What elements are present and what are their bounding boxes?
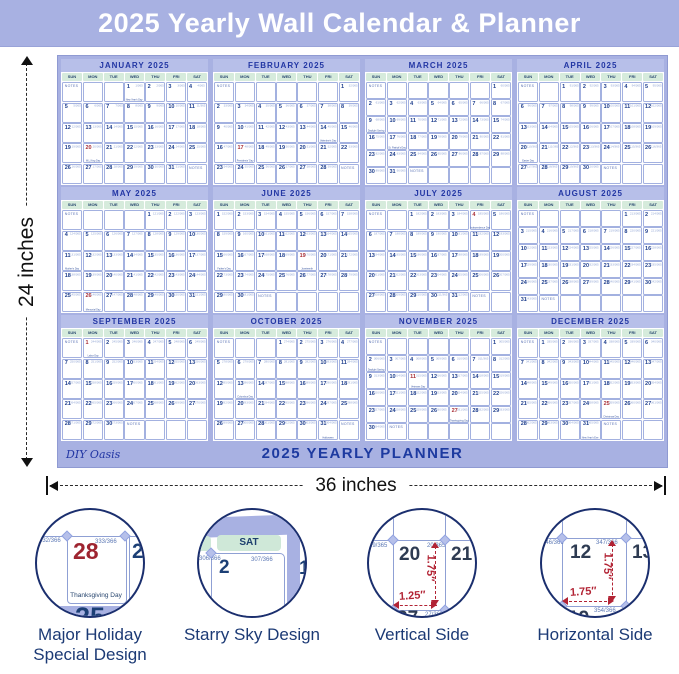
month-grid: NOTES1182/3652183/3653184/3654185/365Ind… [365,209,512,313]
calendar-cell: 19200/365 [491,251,511,271]
measure-arrow-up-icon [431,542,439,548]
calendar-cell: 26207/365 [491,271,511,291]
calendar-cell: 26116/365 [643,143,663,163]
calendar-cell [470,82,490,99]
day-of-year-count: 234/365 [630,263,641,266]
calendar-cell [643,420,663,440]
day-of-year-count: 351/365 [588,381,599,384]
calendar-cell: 28271/365 [62,420,82,440]
date-number: 13 [300,125,306,131]
calendar-cell: 9221/365 [643,227,663,244]
date-number: 30 [148,165,154,171]
notes-label: NOTES [65,340,79,344]
calendar-cell: 23296/365 [297,399,317,419]
day-of-year-count: 263/365 [194,381,205,384]
day-of-year-count: 265/365 [91,401,102,404]
weekday-header: TUE [408,73,428,81]
calendar-cell: 1748/365Presidents' Day [235,143,255,163]
calendar-cell: 18199/365 [470,251,490,271]
notes-label: NOTES [521,84,535,88]
calendar-cell: 25359/365Christmas Day [601,399,621,419]
calendar-cell: 2727/365 [83,164,103,184]
star-diamond-icon [620,532,631,543]
calendar-cell [428,338,448,355]
date-number: 12 [279,125,285,131]
day-of-year-count: 56/365 [265,165,274,168]
calendar-cell: 55/365 [62,103,82,123]
weekday-header: THU [449,329,469,337]
calendar-cell: 867/365 [491,99,511,116]
holiday-name-label: Juneteenth [297,267,318,270]
day-of-year-count: 25/365 [196,145,205,148]
calendar-cell: 23266/365 [104,399,124,419]
day-of-year-count: 93/365 [611,84,620,87]
day-of-year-count: 325/365 [478,391,489,394]
calendar-cell: 25206/365 [470,271,490,291]
day-of-year-count: 177/365 [305,273,316,276]
day-of-year-count: 21/365 [113,145,122,148]
calendar-cell: 11162/365 [276,231,296,251]
day-of-year-count: 256/365 [194,360,205,363]
calendar-cell: 968/365Daylight Saving [366,116,386,133]
month-grid: NOTES191/365292/365393/365494/365595/365… [517,81,664,185]
date-number: 2 [106,340,109,346]
day-of-year-count: 273/365 [112,421,123,424]
day-of-year-count: 82/365 [376,152,385,155]
calendar-cell: 1213/365 [622,210,642,227]
date-number: 3 [127,340,130,346]
date-number: 3 [258,212,261,218]
date-number: 7 [604,229,607,235]
date-number: 27 [300,165,306,171]
calendar-cell: 2887/365 [470,150,490,167]
calendar-cell: 5125/365 [83,231,103,251]
calendar-cell: 30273/365 [104,420,124,440]
calendar-cell: 494/365 [622,82,642,102]
day-of-year-count: 192/365 [478,232,489,235]
calendar-cell: 22265/365 [83,399,103,419]
date-number: 20 [85,145,91,151]
calendar-cell: 19262/365 [166,379,186,399]
calendar-cell: 18352/365 [601,379,621,399]
date-number: 1 [279,340,282,346]
calendar-cell: NOTES [366,210,386,230]
calendar-cell: 19323/365 [428,389,448,406]
day-of-year-count: 28/365 [113,165,122,168]
month-january-2025: JANUARY 2025SUNMONTUEWEDTHUFRISATNOTES11… [61,59,208,185]
calendar-cell: 27300/365 [235,420,255,440]
day-of-year-count: 163/365 [305,232,316,235]
weekday-header-row: SUNMONTUEWEDTHUFRISAT [365,200,512,209]
day-of-year-count: 127/365 [132,232,143,235]
day-of-year-count: 225/365 [588,246,599,249]
day-of-year-count: 27/365 [93,165,102,168]
partial-date: 1 [299,558,307,580]
date-number: 7 [541,104,544,110]
day-of-year-count: 99/365 [590,104,599,107]
weekday-header: SAT [643,73,663,81]
date-number: 3 [452,212,455,218]
calendar-cell: 23174/365 [235,271,255,291]
day-of-year-count: 162/365 [284,232,295,235]
calendar-cell: 13256/365 [187,359,207,379]
date-number: 9 [106,360,109,366]
day-of-year-count: 120/365 [588,165,599,168]
cell-height-label: 1.75″ [424,554,437,581]
calendar-cell: 25298/365 [339,399,359,419]
calendar-cell: 7219/365 [601,227,621,244]
day-of-year-count: 159/365 [222,232,233,235]
date-number: 4 [279,212,282,218]
calendar-cell: 4247/365 [145,338,165,358]
date-number: 5 [431,357,434,363]
calendar-cell: 20140/365 [104,271,124,291]
calendar-cell: 10344/365 [580,359,600,379]
calendar-cell: 13133/365 [104,251,124,271]
day-of-year-count: 319/365 [498,374,509,377]
calendar-cell: 13347/365 [643,359,663,379]
calendar-cell: 3190/365 [387,167,407,184]
day-of-year-count: 173/365 [222,273,233,276]
calendar-cell: 11131/365Mother's Day [62,251,82,271]
calendar-cell: 11284/365 [339,359,359,379]
day-of-year-count: 274/365 [284,340,295,343]
day-of-year-count: 60/365 [500,84,509,87]
weekday-header-row: SUNMONTUEWEDTHUFRISAT [61,328,208,337]
calendar-cell: 3131/365 [166,164,186,184]
day-of-year-count: 155/365 [284,212,295,215]
weekday-header: TUE [560,201,580,209]
day-of-year-count: 58/365 [307,165,316,168]
day-of-year-count: 248/365 [174,340,185,343]
day-of-year-count: 187/365 [374,232,385,235]
day-of-year-count: 329/365 [416,408,427,411]
day-of-year-count: 358/365 [588,401,599,404]
date-number: 15 [127,125,133,131]
cell-width-label: 1.25″ [399,589,426,603]
calendar-cell: 2584/365 [408,150,428,167]
day-of-year-count: 175/365 [264,273,275,276]
calendar-cell: 13164/365 [318,231,338,251]
calendar-cell: 2525/365 [187,143,207,163]
calendar-cell: 6218/365 [580,227,600,244]
day-of-year-count: 322/365 [416,391,427,394]
date-number: 5 [300,212,303,218]
calendar-cell: NOTES [518,210,538,227]
date-number: 3 [604,84,607,90]
day-of-year-count: 303/365 [305,421,316,424]
calendar-cell: 27270/365 [187,399,207,419]
day-of-year-count: 306/365 [374,357,385,360]
day-of-year-count: 7/365 [115,104,122,107]
day-of-year-count: 74/365 [500,118,509,121]
calendar-cell: 23235/365 [643,261,663,278]
day-of-year-count: 6/365 [94,104,101,107]
day-of-year-count: 29/365 [134,165,143,168]
calendar-cell: 21172/365 [339,251,359,271]
date-number: 16 [217,145,223,151]
date-number: 4 [258,104,261,110]
calendar-cell: 6187/365 [366,231,386,251]
month-may-2025: MAY 2025SUNMONTUEWEDTHUFRISATNOTES1121/3… [61,187,208,313]
day-of-year-count: 362/365 [526,421,537,424]
calendar-cell: 5156/365 [297,210,317,230]
weekday-header: SAT [339,201,359,209]
day-of-year-count: 92/365 [590,84,599,87]
weekday-header: THU [145,73,165,81]
calendar-cell: 2051/365 [297,143,317,163]
day-of-year-count: 166/365 [222,253,233,256]
date-number: 10 [237,125,243,131]
day-of-year-count: 258/365 [91,381,102,384]
date-number: 11 [258,125,264,131]
day-of-year-count: 244/365 [91,340,102,343]
calendar-cell [83,82,103,102]
weekday-header: WED [277,201,297,209]
calendar-cell: 29119/365 [560,164,580,184]
day-of-year-count: 227/365 [630,246,641,249]
day-header-pill: SAT [217,535,281,551]
day-of-year-count: 26/365 [72,165,81,168]
date-number: 2 [237,212,240,218]
notes-label: NOTES [341,166,355,170]
day-of-year-count: 118/365 [547,165,558,168]
calendar-cell [580,295,600,312]
calendar-cell: 15196/365 [408,251,428,271]
holiday-name-label: Thanksgiving Day [67,592,125,599]
day-of-year-count: 97/365 [549,104,558,107]
calendar-cell: 18138/365 [62,271,82,291]
calendar-cell: 15105/365 [560,123,580,143]
calendar-cell: 4216/365 [539,227,559,244]
calendar-cell: 14226/365 [601,244,621,261]
calendar-cell: 23113/365 [580,143,600,163]
calendar-cell: 17260/365 [124,379,144,399]
day-of-year-count: 307/365 [395,357,406,360]
calendar-cell: 30303/365 [297,420,317,440]
weekday-header: TUE [256,329,276,337]
date-number: 4 [189,84,192,90]
day-of-year-count: 73/365 [479,118,488,121]
calendar-cell: 696/365 [518,103,538,123]
notes-label: NOTES [65,84,79,88]
calendar-cell [428,82,448,99]
calendar-cell: 31304/365Halloween [318,420,338,440]
day-of-year-count: 182/365 [416,212,427,215]
calendar-cell: 29210/365 [408,292,428,312]
weekday-header-row: SUNMONTUEWEDTHUFRISAT [213,328,360,337]
day-of-year-count: 85/365 [438,152,447,155]
day-of-year-count: 113/365 [589,145,600,148]
calendar-cell: 2020/365M.L.King Day [83,143,103,163]
weekday-header: SUN [518,73,538,81]
day-of-year-count: 141/365 [132,273,143,276]
weekday-header: SUN [62,329,82,337]
calendar-cell: 26299/365 [214,420,234,440]
date-number: 31 [389,169,395,175]
day-of-year-count: 89/365 [376,169,385,172]
day-of-year-count: 241/365 [630,280,641,283]
day-of-year-count: 209/365 [395,293,406,296]
calendar-cell: 637/365 [297,103,317,123]
calendar-cell: 22234/365 [622,261,642,278]
feature-circle-major-holiday: 332/366 333/366 28 29 Thanksgiving Day 2… [35,508,145,618]
day-of-year-count: 170/365 [305,253,316,256]
day-of-year-count: 332/365 [478,408,489,411]
holiday-name-label: M.L.King Day [83,160,104,163]
day-of-year-count: 365/365 [588,421,599,424]
day-of-year-count: 188/365 [395,232,406,235]
calendar-cell: 33/365 [166,82,186,102]
calendar-cell: 7341/365 [518,359,538,379]
month-title-label: FEBRUARY 2025 [213,59,360,72]
day-of-year-count: 213/365 [630,212,641,215]
day-of-year-count: 268/365 [153,401,164,404]
day-of-year-count: 52/365 [327,145,336,148]
calendar-cell: 6340/365 [643,338,663,358]
day-of-year-count: 294/365 [264,401,275,404]
calendar-cell: 4338/365 [601,338,621,358]
date-number: 13 [85,125,91,131]
date-number: 8 [562,104,565,110]
date-number: 4 [541,229,544,235]
weekday-header: FRI [166,201,186,209]
calendar-cell: 88/365 [124,103,144,123]
day-of-year-count: 281/365 [284,360,295,363]
calendar-cell: 940/365 [214,123,234,143]
calendar-cell: 435/365 [256,103,276,123]
calendar-cell: 1170/365 [408,116,428,133]
calendar-cell: 8342/365 [539,359,559,379]
calendar-cell: 21264/365 [62,399,82,419]
date-number: 2 [168,212,171,218]
notes-label: NOTES [472,294,486,298]
calendar-cell: 25237/365 [539,278,559,295]
calendar-cell: 3123/365 [187,210,207,230]
calendar-cell [580,210,600,227]
date-number: 27 [85,165,91,171]
calendar-cell [491,167,511,184]
day-of-year-count: 61/365 [376,101,385,104]
day-of-year-count: 323/365 [436,391,447,394]
calendar-cell: 17229/365 [518,261,538,278]
calendar-cell: 8189/365 [408,231,428,251]
calendar-cell: 1344/365 [297,123,317,143]
star-diamond-icon [387,534,398,545]
day-of-year-count: 167/365 [243,253,254,256]
sample-date: 12 [570,542,591,564]
calendar-cell [601,210,621,227]
grid-line [369,540,475,541]
date-number: 6 [645,340,648,346]
weekday-header: TUE [560,73,580,81]
day-of-year-count: 4/365 [198,84,205,87]
day-of-year-count: 27/365 [425,612,443,618]
calendar-cell: 14195/365 [387,251,407,271]
calendar-cell: 1010/365 [166,103,186,123]
weekday-header: SUN [214,329,234,337]
calendar-cell: NOTES [601,164,621,184]
calendar-cell [235,338,255,358]
weekday-header: FRI [318,201,338,209]
calendar-cell: 2626/365 [62,164,82,184]
day-of-year-count: 203/365 [416,273,427,276]
calendar-cell: 24328/365 [387,406,407,423]
day-of-year-count: 112/365 [568,145,579,148]
calendar-cell [83,210,103,230]
date-number: 17 [237,145,243,151]
day-of-year-count: 14/365 [113,125,122,128]
date-number: 1 [410,212,413,218]
day-of-year-count: 255/365 [174,360,185,363]
date-number: 26 [431,152,437,158]
day-of-year-count: 324/365 [457,391,468,394]
day-of-year-count: 24/365 [175,145,184,148]
calendar-cell: 28179/365 [339,271,359,291]
day-of-year-count: 96/365 [528,104,537,107]
calendar-cell: NOTES [339,420,359,440]
day-of-year-count: 111/365 [547,145,557,148]
holiday-name-label: Veterans Day [408,385,429,388]
date-number: 26 [65,165,71,171]
calendar-cell: 3246/365 [124,338,144,358]
calendar-cell: 26269/365 [166,399,186,419]
calendar-cell: 10100/365 [601,103,621,123]
day-of-year-count: 214/365 [650,212,661,215]
weekday-header: SAT [187,201,207,209]
day-of-year-count: 176/365 [284,273,295,276]
day-of-year-count: 37/365 [307,104,316,107]
calendar-cell: 8220/365 [622,227,642,244]
holiday-name-label: Independence Day [470,226,491,229]
month-june-2025: JUNE 2025SUNMONTUEWEDTHUFRISAT1152/36521… [213,187,360,313]
feature-major-holiday: 332/366 333/366 28 29 Thanksgiving Day 2… [15,508,165,666]
calendar-cell: 8159/365 [214,231,234,251]
weekday-header: WED [277,73,297,81]
weekday-header: MON [539,329,559,337]
calendar-cell: 29302/365 [276,420,296,440]
holiday-name-label: St. Patrick's Day [387,146,408,149]
day-of-year-count: 64/365 [438,101,447,104]
day-of-year-count: 105/365 [568,125,579,128]
date-number: 10 [389,118,395,124]
date-number: 8 [217,232,220,238]
day-of-year-count: 122/365 [174,212,185,215]
day-of-year-count: 136/365 [174,253,185,256]
day-of-year-count: 10/365 [175,104,184,107]
calendar-cell: 15258/365 [83,379,103,399]
calendar-cell: 1372/365 [449,116,469,133]
weekday-header-row: SUNMONTUEWEDTHUFRISAT [213,72,360,81]
day-of-year-count: 125/365 [91,232,102,235]
date-number: 6 [320,212,323,218]
calendar-cell: 16106/365 [580,123,600,143]
calendar-cell: 27117/365 [518,164,538,184]
calendar-cell: 21233/365 [601,261,621,278]
calendar-cell: 9313/365 [366,372,386,389]
day-of-year-count: 334/365 [374,425,385,428]
calendar-cell: 20324/365 [449,389,469,406]
calendar-cell: 9282/365 [297,359,317,379]
calendar-cell: 31243/365 [518,295,538,312]
calendar-cell: 14165/365 [339,231,359,251]
weekday-header-row: SUNMONTUEWEDTHUFRISAT [365,72,512,81]
calendar-cell [622,420,642,440]
day-of-year-count: 68/365 [376,118,385,121]
day-of-year-count: 100/365 [609,104,620,107]
calendar-cell: 14318/365 [470,372,490,389]
weekday-header: THU [145,201,165,209]
